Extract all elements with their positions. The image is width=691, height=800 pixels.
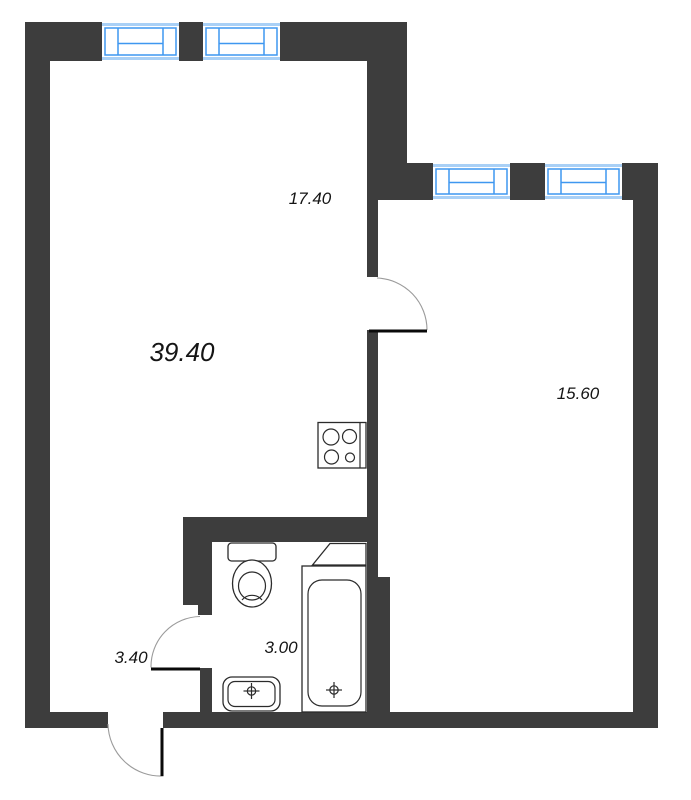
- room-area-label-hallway: 3.40: [114, 648, 148, 667]
- wall-segment: [183, 517, 212, 605]
- room-area-label-living-zone: 17.40: [289, 189, 332, 208]
- shelf-icon: [313, 544, 367, 566]
- door-swing-icon-bedroom: [369, 278, 427, 331]
- room-area-label-bathroom: 3.00: [264, 638, 298, 657]
- wall-segment: [633, 163, 658, 728]
- wall-segment: [25, 712, 108, 728]
- wall-segment: [163, 712, 658, 728]
- sink-icon: [223, 677, 280, 711]
- wall-segment: [179, 22, 203, 61]
- door-swing-icon-bathroom: [151, 617, 200, 670]
- wall-segment: [622, 163, 658, 200]
- wall-segment: [25, 22, 50, 728]
- floor-plan: 17.40 39.40 15.60 3.40 3.00: [0, 0, 691, 800]
- wall-segment: [367, 200, 378, 277]
- room-area-label-living-kitchen: 39.40: [149, 337, 215, 367]
- window-icon: [102, 22, 179, 61]
- wall-segment: [367, 330, 378, 577]
- wall-segment: [367, 577, 390, 712]
- window-icon: [203, 22, 280, 61]
- stove-icon: [318, 423, 366, 469]
- wall-segment: [510, 163, 545, 200]
- window-icon: [433, 163, 510, 200]
- room-area-label-bedroom: 15.60: [557, 384, 600, 403]
- wall-segment: [367, 61, 407, 200]
- wall-segment: [280, 22, 407, 61]
- door-swing-icon-entrance: [108, 724, 164, 776]
- toilet-icon: [228, 543, 276, 607]
- wall-segment: [198, 605, 212, 615]
- wall-segment: [407, 163, 433, 200]
- window-icon: [545, 163, 622, 200]
- wall-segment: [200, 668, 212, 712]
- bathtub-icon: [302, 566, 366, 712]
- floor-plan-page: 17.40 39.40 15.60 3.40 3.00: [0, 0, 691, 800]
